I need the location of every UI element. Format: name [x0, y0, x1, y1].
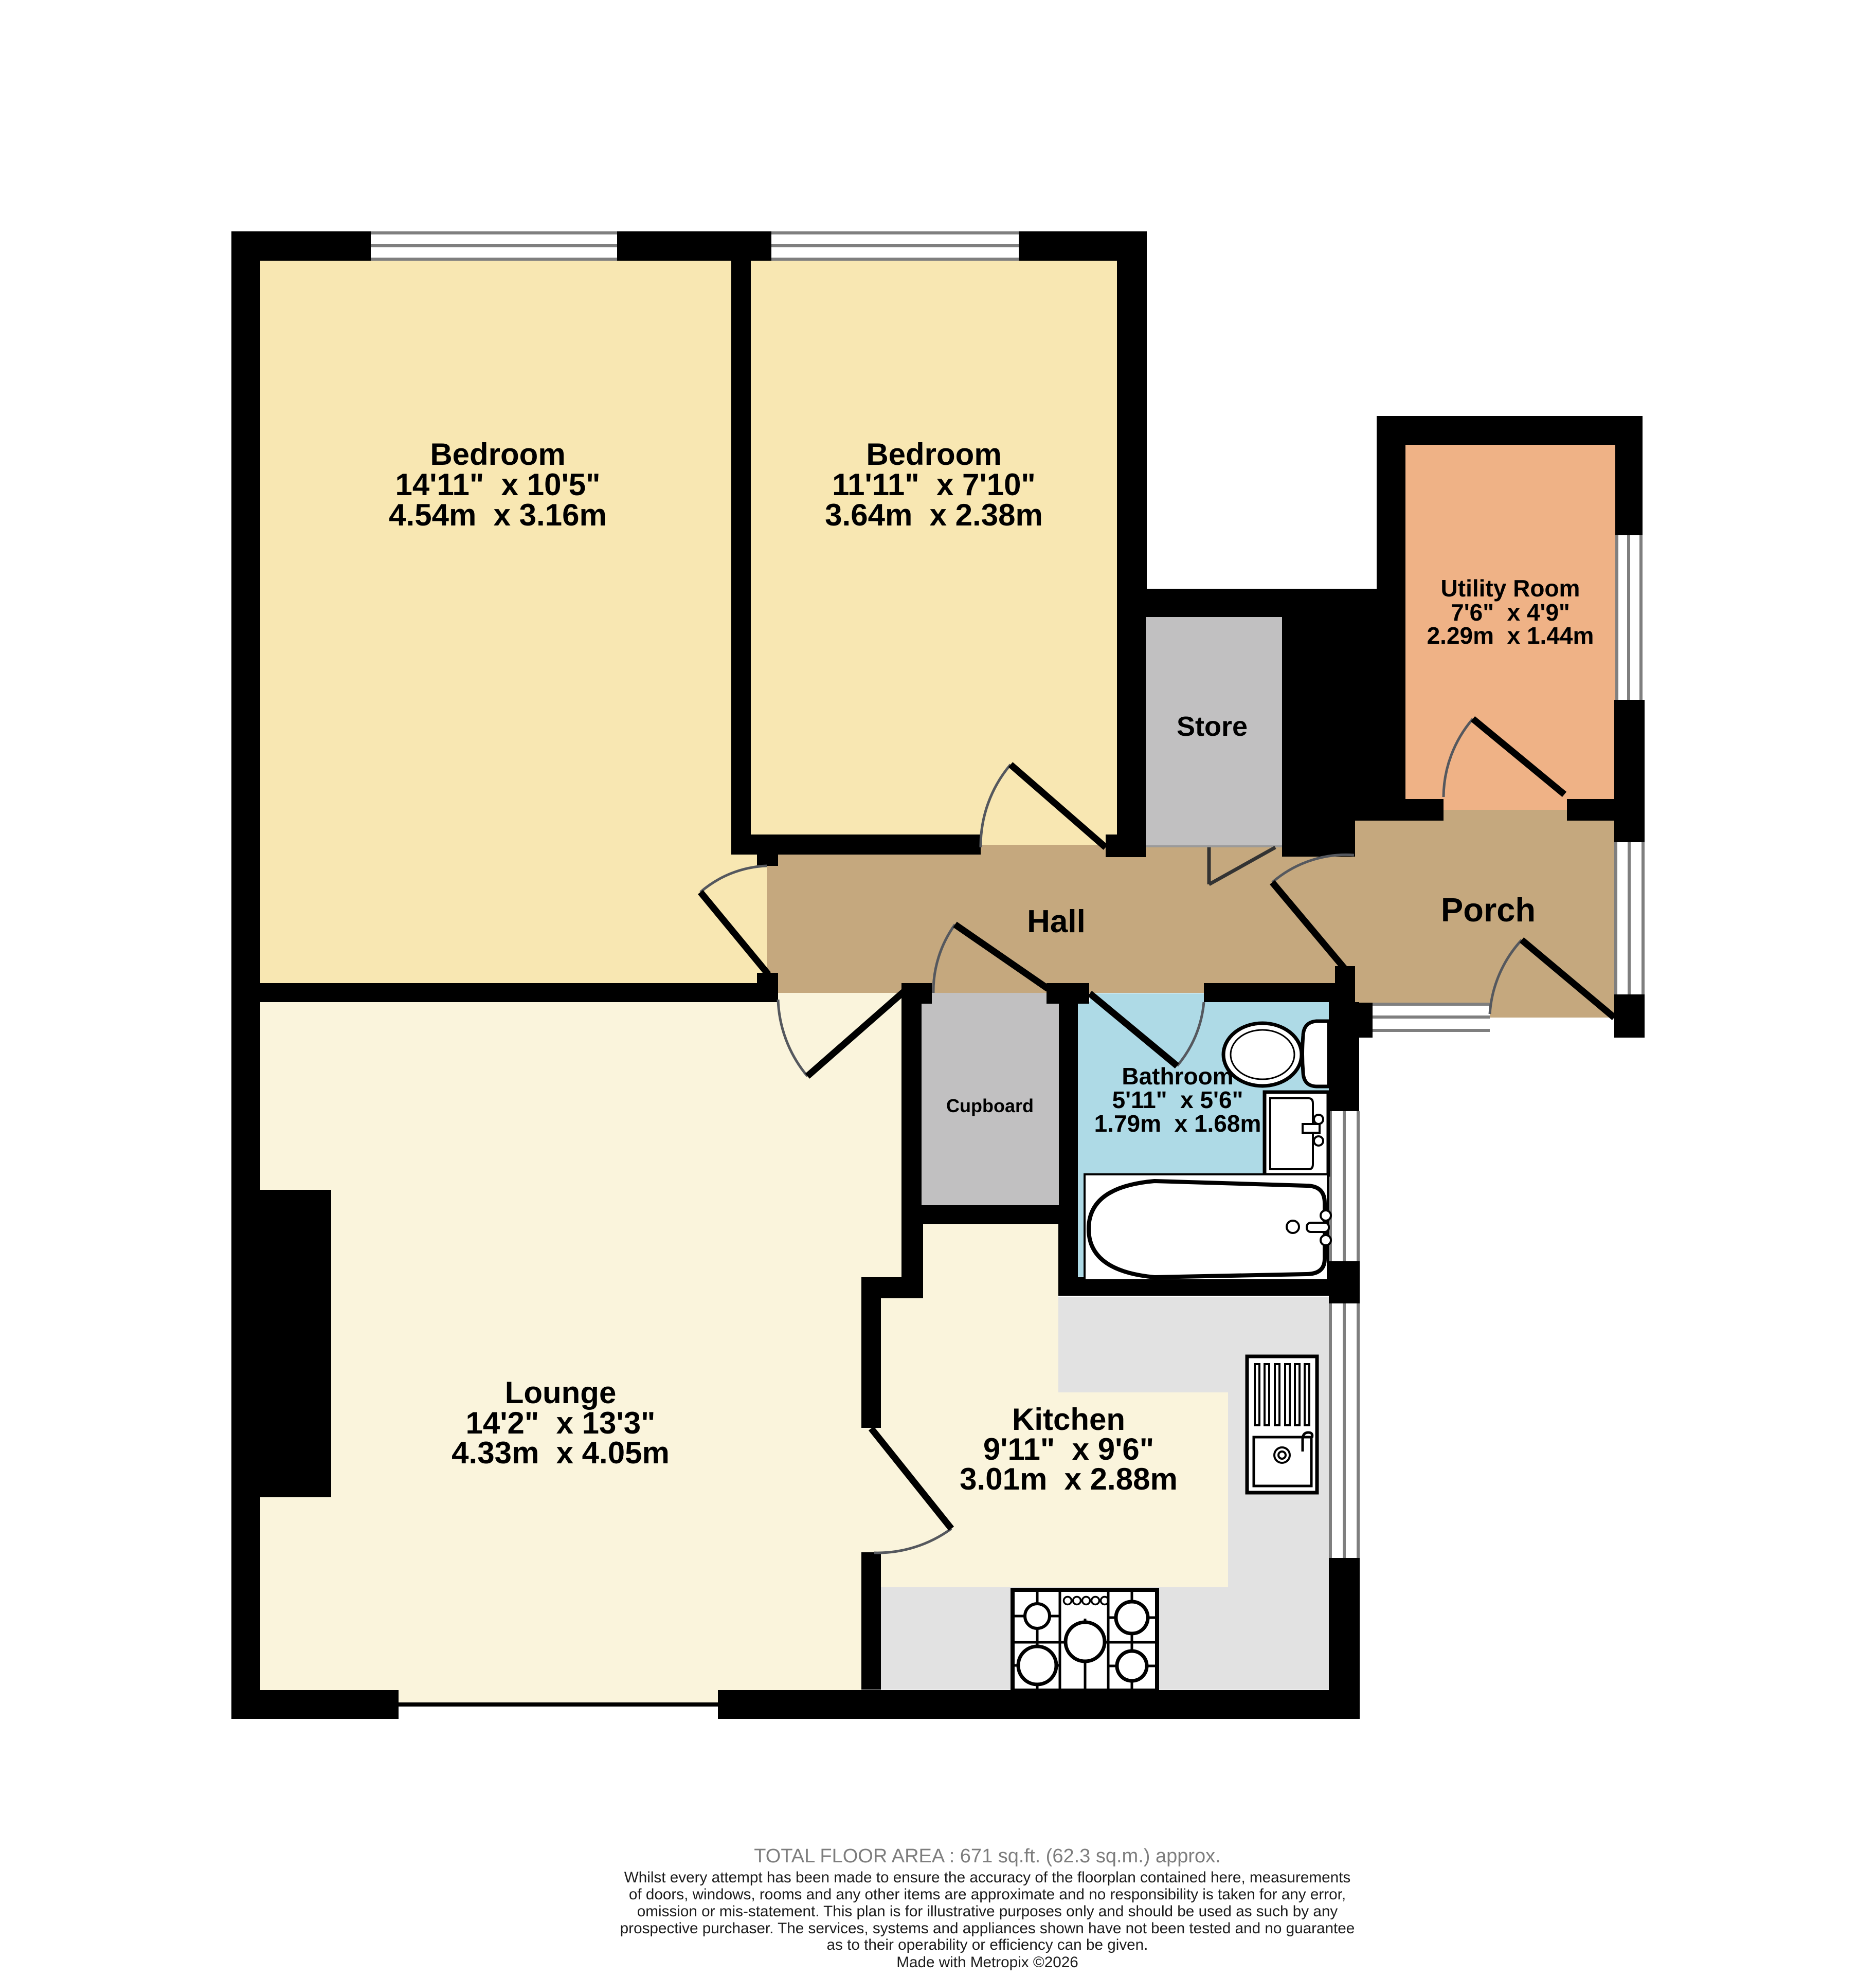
svg-text:Porch: Porch [1441, 891, 1536, 929]
svg-text:14'2" x 13'3": 14'2" x 13'3" [465, 1406, 655, 1440]
svg-text:Bathroom: Bathroom [1122, 1063, 1233, 1090]
svg-text:9'11" x 9'6": 9'11" x 9'6" [983, 1432, 1154, 1466]
svg-text:11'11" x 7'10": 11'11" x 7'10" [832, 467, 1036, 502]
svg-text:1.79m x 1.68m: 1.79m x 1.68m [1094, 1110, 1261, 1137]
svg-text:4.54m x 3.16m: 4.54m x 3.16m [389, 498, 607, 532]
svg-text:as to their operability or eff: as to their operability or efficiency ca… [827, 1936, 1148, 1953]
svg-text:Kitchen: Kitchen [1012, 1402, 1125, 1437]
svg-text:of doors, windows, rooms and a: of doors, windows, rooms and any other i… [629, 1886, 1346, 1903]
svg-text:Cupboard: Cupboard [946, 1095, 1034, 1116]
svg-text:Store: Store [1177, 711, 1248, 742]
svg-text:14'11" x 10'5": 14'11" x 10'5" [395, 467, 600, 502]
svg-text:Bedroom: Bedroom [866, 437, 1001, 471]
svg-text:Utility Room: Utility Room [1441, 575, 1580, 602]
svg-text:4.33m x 4.05m: 4.33m x 4.05m [452, 1436, 670, 1470]
svg-text:3.01m x 2.88m: 3.01m x 2.88m [960, 1462, 1178, 1496]
svg-text:2.29m x 1.44m: 2.29m x 1.44m [1427, 622, 1594, 649]
svg-text:Made with Metropix ©2026: Made with Metropix ©2026 [896, 1954, 1078, 1971]
svg-text:TOTAL FLOOR AREA : 671 sq.ft.: TOTAL FLOOR AREA : 671 sq.ft. (62.3 sq.m… [754, 1845, 1220, 1867]
svg-text:3.64m x 2.38m: 3.64m x 2.38m [825, 498, 1043, 532]
svg-text:Lounge: Lounge [505, 1375, 617, 1410]
svg-text:Hall: Hall [1027, 904, 1086, 939]
svg-text:Whilst every attempt has been: Whilst every attempt has been made to en… [624, 1869, 1351, 1886]
svg-text:prospective purchaser. The ser: prospective purchaser. The services, sys… [620, 1920, 1355, 1937]
svg-text:5'11" x 5'6": 5'11" x 5'6" [1112, 1086, 1243, 1113]
svg-text:Bedroom: Bedroom [430, 437, 565, 471]
svg-text:omission or mis-statement. Thi: omission or mis-statement. This plan is … [637, 1903, 1338, 1920]
